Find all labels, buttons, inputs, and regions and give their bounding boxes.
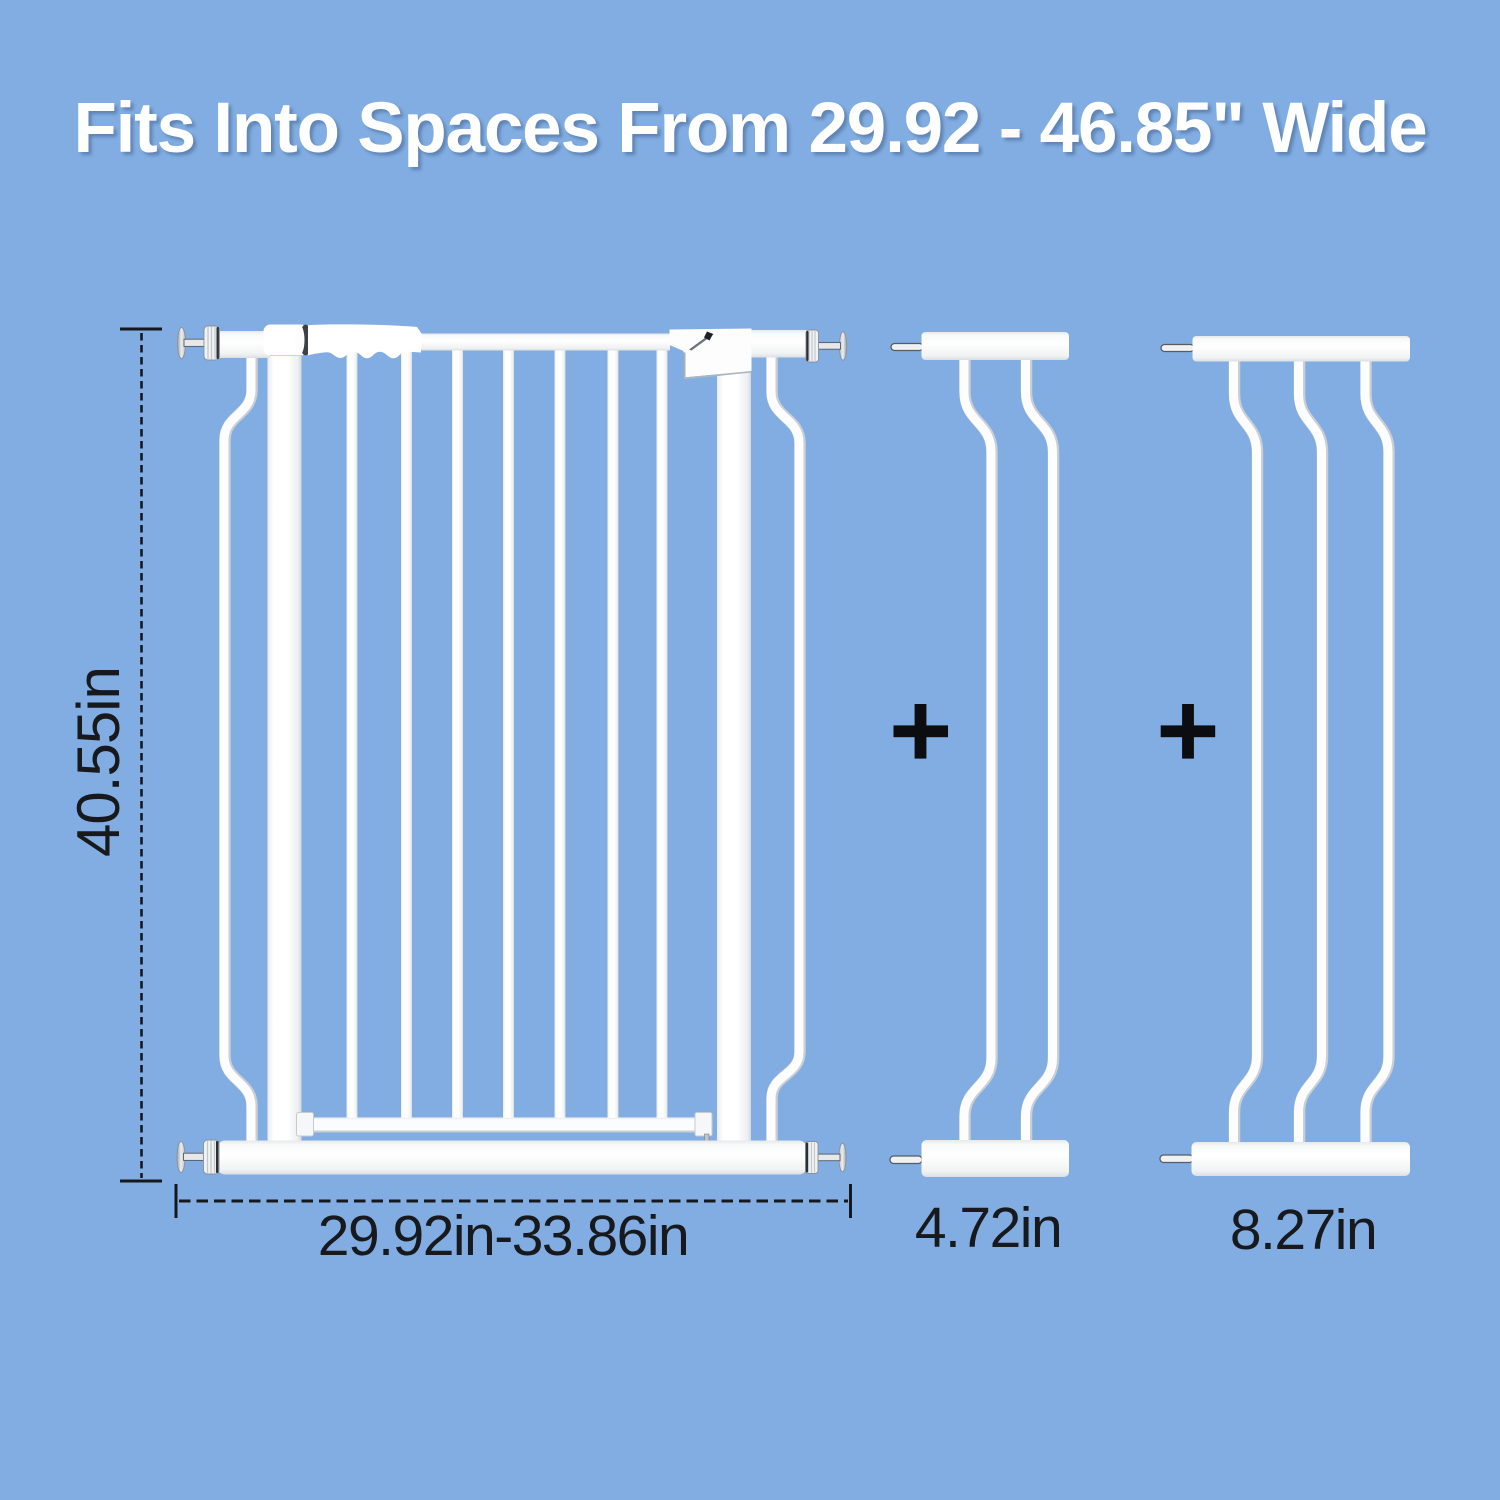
svg-text:8.27in: 8.27in bbox=[1230, 1198, 1376, 1262]
svg-text:4.72in: 4.72in bbox=[915, 1196, 1061, 1260]
svg-text:40.55in: 40.55in bbox=[65, 667, 132, 857]
svg-text:Fits Into Spaces From 29.92 -: Fits Into Spaces From 29.92 - 46.85" Wid… bbox=[73, 89, 1426, 168]
svg-text:29.92in-33.86in: 29.92in-33.86in bbox=[318, 1204, 689, 1268]
